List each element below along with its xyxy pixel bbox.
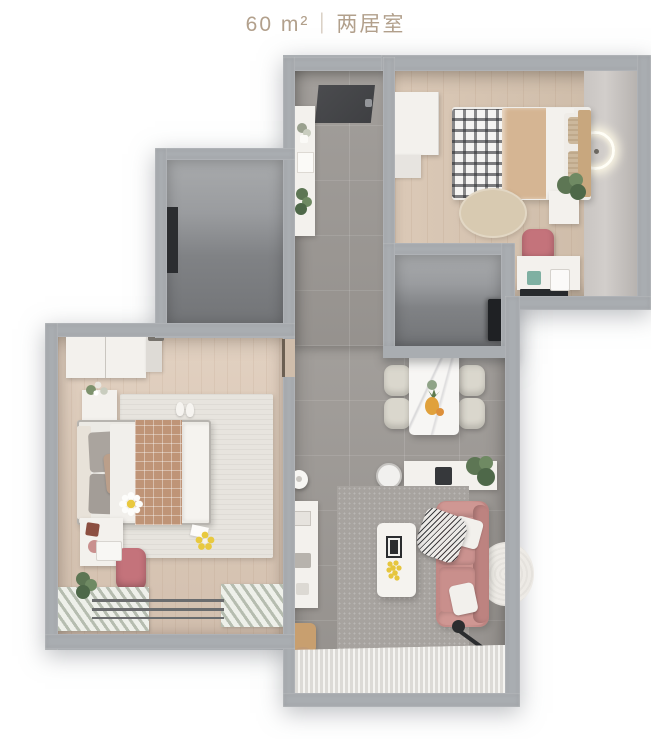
slipper-left (176, 402, 184, 416)
dining-chair-tl (384, 365, 411, 396)
green-cup (427, 380, 437, 390)
wall-utility-left (155, 148, 167, 338)
slipper-right (186, 403, 194, 417)
wardrobe-master-side (146, 336, 162, 372)
layout-type-label: 两居室 (336, 13, 405, 36)
wall-master-top (45, 323, 295, 337)
wall-corridor-top (283, 57, 393, 71)
speaker (435, 467, 452, 485)
curtain-right (221, 584, 283, 627)
yellow-grapes-icon (384, 559, 404, 583)
plan-title: 60 m²｜两居室 (0, 8, 651, 38)
title-divider: ｜ (309, 13, 336, 36)
desk-red-box (85, 522, 100, 537)
dining-chair-tr (458, 365, 485, 396)
sheer-pleated-curtain (293, 645, 505, 695)
floorplan-screenshot: 60 m²｜两居室 (0, 0, 651, 739)
printer (550, 269, 570, 291)
console-frame-a (294, 511, 311, 526)
utility-dark-panel (166, 207, 178, 273)
duvet-second (502, 108, 548, 199)
nightstand-flowers-icon (84, 379, 112, 405)
wardrobe-master (66, 334, 146, 378)
plant-icon-second-bedroom (554, 170, 588, 206)
plaid-blanket (452, 109, 506, 198)
dining-chair-br (458, 398, 485, 429)
wall-bedroom2-right (637, 55, 651, 310)
wardrobe-second (391, 92, 439, 155)
dining-chair-bl (384, 398, 411, 429)
wall-bath-left (383, 243, 395, 358)
plant-icon-sideboard (462, 452, 498, 492)
wall-main-bottom (283, 693, 520, 707)
console-frame-b (294, 553, 311, 568)
wall-bath-top (383, 243, 515, 255)
cabinet-flower-icon (293, 119, 315, 145)
round-jute-rug (459, 188, 527, 238)
utility-room-interior (167, 160, 283, 326)
bathroom-interior (395, 255, 501, 346)
door-handle (365, 99, 372, 107)
wall-utility-top (155, 148, 295, 160)
wall-bedroom2-top (381, 55, 651, 71)
pink-sofa (436, 501, 489, 627)
teal-book (527, 271, 541, 285)
laptop (96, 541, 122, 561)
cabinet-plant-icon (293, 186, 315, 218)
wall-bedroom2-divider (383, 57, 395, 257)
wall-main-right (505, 296, 520, 707)
plant-icon-master (74, 569, 100, 601)
area-label: 60 m² (246, 13, 310, 36)
cabinet-tray (297, 152, 314, 173)
photo-frame (386, 536, 402, 558)
wall-master-bottom (45, 634, 295, 649)
console-deco (296, 583, 309, 595)
wall-master-left (45, 323, 58, 650)
daisy-pillow-icon (119, 492, 143, 516)
master-door-leaf (282, 339, 285, 377)
wall-bath-bottom (383, 346, 515, 358)
duvet-fold (182, 424, 209, 521)
wall-bedroom2-bottom (512, 296, 651, 310)
double-bed (77, 420, 211, 525)
bedroom-second-wall-face (584, 71, 637, 296)
window-track (92, 599, 224, 619)
wardrobe-second-lower (391, 155, 421, 178)
kettle-lid (296, 476, 302, 482)
fruit-icon (422, 388, 446, 418)
yellow-flower-icon (195, 531, 215, 551)
